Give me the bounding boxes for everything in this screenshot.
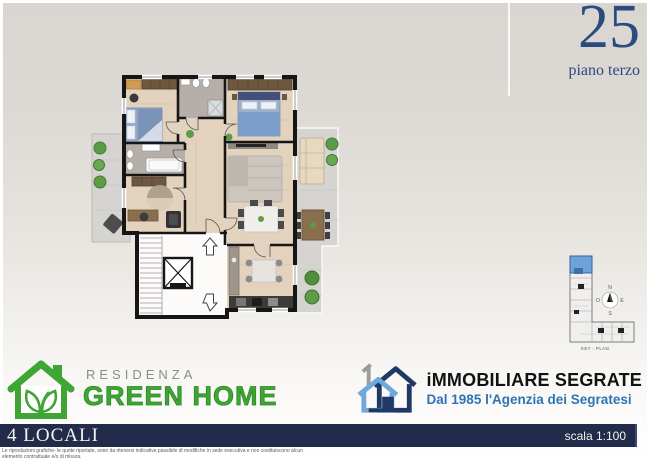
key-plan-caption: KEY - PLAN <box>581 346 609 351</box>
fold-line <box>508 0 510 96</box>
green-home-logo: RESIDENZA GREEN HOME <box>5 356 278 422</box>
floor-number: 25 <box>520 0 640 59</box>
floor-level-label: piano terzo <box>480 62 640 80</box>
key-plan: N E S O KEY - PLAN <box>550 244 650 354</box>
svg-text:O: O <box>596 298 600 304</box>
segrate-houses-icon <box>357 360 419 418</box>
brand-residenza-label: RESIDENZA <box>86 367 278 382</box>
brand-segrate-tagline: Dal 1985 l'Agenzia dei Segratesi <box>427 392 632 407</box>
svg-text:N: N <box>608 285 612 291</box>
brand-green-home-label: GREEN HOME <box>83 382 278 410</box>
svg-text:S: S <box>608 311 612 317</box>
scale-label: scala 1:100 <box>565 429 626 443</box>
green-home-house-icon <box>5 356 77 422</box>
footer-bar: 4 LOCALI scala 1:100 <box>0 424 637 447</box>
immobiliare-segrate-logo: iMMOBILIARE SEGRATE Dal 1985 l'Agenzia d… <box>357 360 642 418</box>
unit-type-label: 4 LOCALI <box>7 425 99 447</box>
brochure-page: 25 piano terzo <box>0 0 650 459</box>
floor-plan <box>86 70 348 338</box>
svg-text:E: E <box>620 298 624 304</box>
brand-segrate-name: iMMOBILIARE SEGRATE <box>427 371 642 391</box>
compass-icon: N E S O <box>596 285 624 317</box>
disclaimer-line-2: elemento contrattuale e/o di misura. <box>2 455 303 459</box>
disclaimer-text: Le riproduzioni grafiche- le quote ripor… <box>2 449 303 459</box>
